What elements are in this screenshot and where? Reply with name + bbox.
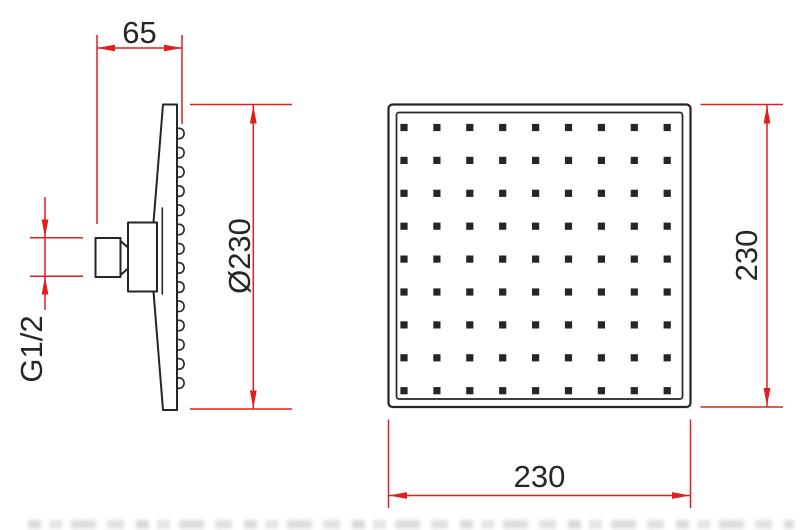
nozzle-dot bbox=[433, 288, 440, 295]
nozzle-dot bbox=[631, 387, 638, 394]
arrowhead-left bbox=[97, 45, 115, 52]
nozzle-dot bbox=[433, 387, 440, 394]
nozzle-dot bbox=[532, 387, 539, 394]
arrowhead-right bbox=[164, 45, 182, 52]
nozzle-dot bbox=[400, 256, 407, 263]
height-dimension-label: 230 bbox=[729, 230, 764, 282]
nozzle-dot bbox=[598, 190, 605, 197]
side-nozzle-bumps bbox=[177, 128, 184, 388]
nozzle-dot bbox=[466, 157, 473, 164]
nozzle-dot bbox=[631, 354, 638, 361]
nozzle-dot bbox=[664, 256, 671, 263]
nozzle-dot bbox=[631, 288, 638, 295]
nozzle-dot bbox=[664, 354, 671, 361]
nozzle-dot bbox=[499, 354, 506, 361]
nozzle-dot bbox=[664, 124, 671, 131]
nozzle-bump bbox=[177, 301, 184, 311]
nozzle-dot bbox=[400, 124, 407, 131]
nozzle-dot bbox=[598, 288, 605, 295]
nozzle-dot bbox=[565, 387, 572, 394]
technical-drawing-canvas: 65 Ø230 G1/2 230 230 bbox=[0, 0, 800, 530]
nozzle-bump bbox=[177, 148, 184, 158]
arrowhead-down bbox=[764, 388, 771, 406]
nozzle-bump bbox=[177, 244, 184, 254]
nozzle-dot bbox=[565, 256, 572, 263]
nozzle-dot bbox=[400, 354, 407, 361]
thread-dimension-label: G1/2 bbox=[14, 315, 49, 382]
nozzle-bump bbox=[177, 167, 184, 177]
nozzle-dot bbox=[565, 223, 572, 230]
nozzle-dot bbox=[499, 256, 506, 263]
nozzle-dot bbox=[631, 223, 638, 230]
nozzle-bump bbox=[177, 224, 184, 234]
diameter-dimension-label: Ø230 bbox=[222, 218, 257, 294]
nozzle-dot bbox=[664, 321, 671, 328]
nozzle-dot bbox=[631, 256, 638, 263]
nozzle-dot bbox=[664, 157, 671, 164]
nozzle-dot bbox=[400, 190, 407, 197]
arrowhead-down bbox=[250, 391, 257, 409]
depth-dimension-label: 65 bbox=[122, 15, 156, 50]
nozzle-dot bbox=[433, 124, 440, 131]
nozzle-dot bbox=[664, 223, 671, 230]
nozzle-dot bbox=[532, 321, 539, 328]
nozzle-dot bbox=[565, 124, 572, 131]
nozzle-dot bbox=[400, 223, 407, 230]
nozzle-dot bbox=[400, 387, 407, 394]
nozzle-dot bbox=[466, 124, 473, 131]
side-view bbox=[96, 105, 185, 411]
nozzle-dot bbox=[631, 190, 638, 197]
nozzle-dot bbox=[466, 256, 473, 263]
nozzle-dot bbox=[532, 288, 539, 295]
nozzle-dot bbox=[433, 190, 440, 197]
front-view bbox=[389, 105, 691, 408]
nozzle-bump bbox=[177, 359, 184, 369]
nozzle-dot bbox=[565, 288, 572, 295]
nozzle-bump bbox=[177, 186, 184, 196]
cutoff-text-artifact bbox=[28, 520, 794, 529]
nozzle-dot bbox=[664, 190, 671, 197]
dim-diameter-230: Ø230 bbox=[190, 105, 292, 410]
nozzle-dot bbox=[532, 157, 539, 164]
nozzle-dot bbox=[400, 321, 407, 328]
nozzle-dot bbox=[499, 223, 506, 230]
width-dimension-label: 230 bbox=[514, 459, 566, 494]
nozzle-dot bbox=[532, 223, 539, 230]
nozzle-dot bbox=[532, 256, 539, 263]
nozzle-dot bbox=[499, 190, 506, 197]
nozzle-dot bbox=[400, 157, 407, 164]
nozzle-dot bbox=[631, 157, 638, 164]
nozzle-dot bbox=[664, 387, 671, 394]
nozzle-dot bbox=[565, 321, 572, 328]
nozzle-dot bbox=[400, 288, 407, 295]
nozzle-dot bbox=[499, 321, 506, 328]
nozzle-dot bbox=[532, 124, 539, 131]
nozzle-dot bbox=[664, 288, 671, 295]
nozzle-dot bbox=[598, 157, 605, 164]
shower-head-drawing: 65 Ø230 G1/2 230 230 bbox=[0, 0, 800, 530]
nozzle-dot bbox=[466, 288, 473, 295]
nozzle-dot bbox=[499, 288, 506, 295]
nozzle-dot bbox=[466, 387, 473, 394]
nozzle-dot bbox=[532, 354, 539, 361]
nozzle-dot bbox=[598, 223, 605, 230]
connector-taper bbox=[121, 241, 129, 275]
nozzle-dot bbox=[433, 256, 440, 263]
arrowhead-up bbox=[42, 277, 49, 295]
nozzle-dot bbox=[499, 387, 506, 394]
arrowhead-down bbox=[42, 220, 49, 238]
nozzle-dot bbox=[598, 124, 605, 131]
nozzle-dot bbox=[466, 223, 473, 230]
nozzle-dot bbox=[466, 354, 473, 361]
arrowhead-up bbox=[764, 106, 771, 124]
nozzle-dot bbox=[499, 124, 506, 131]
nozzle-dot bbox=[433, 157, 440, 164]
dim-width-230: 230 bbox=[389, 420, 691, 509]
arrowhead-up bbox=[250, 106, 257, 124]
nozzle-dot bbox=[598, 387, 605, 394]
nozzle-bump bbox=[177, 320, 184, 330]
nozzle-dot bbox=[631, 321, 638, 328]
nozzle-dot bbox=[598, 256, 605, 263]
nozzle-dot bbox=[598, 354, 605, 361]
nozzle-dot bbox=[565, 157, 572, 164]
nozzle-bump bbox=[177, 205, 184, 215]
nozzle-bump bbox=[177, 378, 184, 388]
nozzle-dot bbox=[433, 354, 440, 361]
nozzle-dot bbox=[466, 190, 473, 197]
nozzle-bump bbox=[177, 128, 184, 138]
arrowhead-right bbox=[672, 492, 690, 499]
nozzle-dot bbox=[499, 157, 506, 164]
nozzle-bump bbox=[177, 282, 184, 292]
thread-connector bbox=[96, 238, 121, 277]
nozzle-dot bbox=[565, 354, 572, 361]
nozzle-dot bbox=[631, 124, 638, 131]
nozzle-dot bbox=[565, 190, 572, 197]
dim-thread-g12: G1/2 bbox=[14, 197, 83, 383]
nozzle-dot bbox=[433, 223, 440, 230]
arrowhead-left bbox=[389, 492, 407, 499]
nozzle-bump bbox=[177, 340, 184, 350]
nozzle-dot bbox=[598, 321, 605, 328]
nozzle-dot bbox=[466, 321, 473, 328]
mounting-base bbox=[128, 223, 157, 292]
nozzle-dot bbox=[532, 190, 539, 197]
dim-height-230: 230 bbox=[701, 105, 784, 408]
nozzle-dot bbox=[433, 321, 440, 328]
nozzle-bump bbox=[177, 263, 184, 273]
